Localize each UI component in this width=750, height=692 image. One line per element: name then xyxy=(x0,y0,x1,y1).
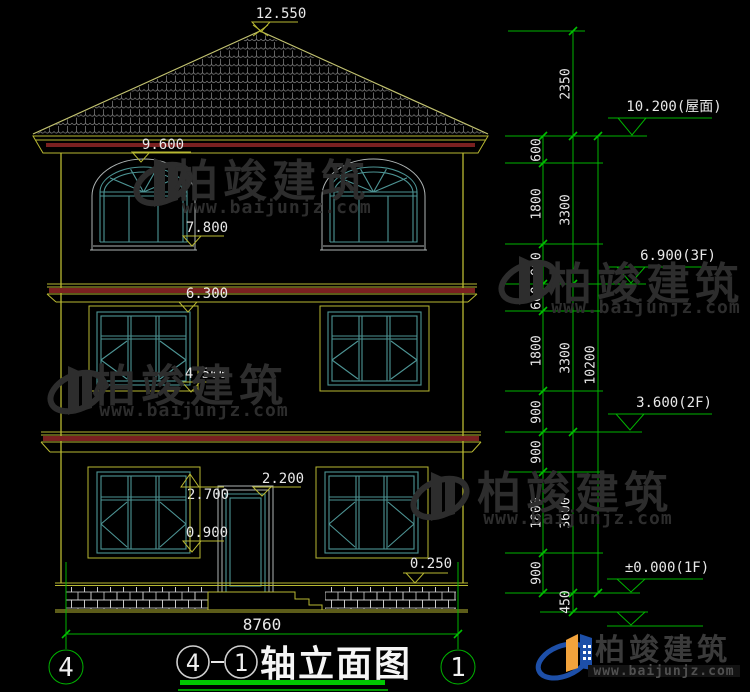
dim-2350: 2350 xyxy=(559,68,574,99)
plinth-base xyxy=(55,583,468,612)
title-axis-b: 1 xyxy=(234,649,248,677)
level-f1-head-label: 2.700 xyxy=(187,487,229,503)
dim-3300-b: 3300 xyxy=(559,342,574,373)
dim-1800-b: 1800 xyxy=(530,335,545,366)
watermark-1: 柏竣建筑 www.baijunjz.com xyxy=(131,156,372,218)
dim-900-d: 900 xyxy=(530,561,545,584)
dim-450: 450 xyxy=(559,590,574,613)
level-f1-sill-label: 0.900 xyxy=(186,525,228,541)
axis-bubble-right: 1 xyxy=(441,650,475,684)
cad-elevation-sheet: 12.550 9.600 7.800 6.300 4.500 2.700 2.2… xyxy=(0,0,750,692)
level-door-head: 2.200 xyxy=(253,471,304,496)
f2-floor-band xyxy=(41,432,481,452)
entry-steps xyxy=(208,592,322,610)
eave-cornice xyxy=(33,136,488,153)
hip-roof xyxy=(33,25,488,134)
level-plinth: 0.250 xyxy=(403,556,452,583)
watermark-url: www.baijunjz.com xyxy=(483,508,672,529)
level-f3-sill: 7.800 xyxy=(183,220,228,246)
level-f2-head-label: 6.300 xyxy=(186,286,228,302)
window-2f-right xyxy=(320,306,429,391)
title-underline-thick xyxy=(180,680,385,685)
title-text: 轴立面图 xyxy=(260,644,412,685)
roof-tile-field xyxy=(35,33,486,134)
drawing-title: 4 1 轴立面图 xyxy=(177,644,412,690)
dim-10200: 10200 xyxy=(584,345,599,384)
dim-1800-a: 1800 xyxy=(530,188,545,219)
logo-name: 柏竣建筑 xyxy=(595,633,731,668)
watermark-3: 柏竣建筑 www.baijunjz.com xyxy=(45,361,289,421)
level-door-head-label: 2.200 xyxy=(262,471,304,487)
level-plinth-label: 0.250 xyxy=(410,556,452,572)
level-ground-marker xyxy=(607,612,703,626)
brick-band-left xyxy=(66,587,208,609)
f3-floor-band xyxy=(47,284,477,302)
level-2f-label: 3.600(2F) xyxy=(636,395,712,411)
title-axis-a: 4 xyxy=(186,649,200,677)
level-f3-sill-label: 7.800 xyxy=(186,220,228,236)
level-ridge: 12.550 xyxy=(252,6,306,32)
level-ridge-label: 12.550 xyxy=(256,6,307,22)
window-1f-right xyxy=(316,467,428,558)
level-roof-label: 10.200(屋面) xyxy=(626,99,721,115)
watermark-url: www.baijunjz.com xyxy=(182,197,371,218)
level-1f-label: ±0.000(1F) xyxy=(625,560,709,576)
dim-600-a: 600 xyxy=(530,138,545,161)
overall-width-label: 8760 xyxy=(243,615,282,634)
company-logo: 柏竣建筑 www.baijunjz.com xyxy=(533,633,740,685)
brick-band-right xyxy=(325,587,456,609)
axis-left-number: 4 xyxy=(58,653,74,683)
dim-3300-a: 3300 xyxy=(559,194,574,225)
logo-building-orange xyxy=(566,634,578,672)
logo-url: www.baijunjz.com xyxy=(593,664,734,679)
watermark-url: www.baijunjz.com xyxy=(551,297,740,318)
story-level-markers: 10.200(屋面) 6.900(3F) 3.600(2F) ±0.000(1F… xyxy=(607,99,722,626)
axis-bubble-left: 4 xyxy=(49,650,83,684)
window-1f-left xyxy=(88,467,200,558)
level-1f-marker: ±0.000(1F) xyxy=(607,560,709,592)
level-eave-label: 9.600 xyxy=(142,137,184,153)
level-2f-marker: 3.600(2F) xyxy=(608,395,712,430)
dim-900-b: 900 xyxy=(530,400,545,423)
level-f2-head: 6.300 xyxy=(179,286,228,312)
axis-right-number: 1 xyxy=(450,653,466,683)
level-roof-marker: 10.200(屋面) xyxy=(608,99,722,135)
dim-900-c: 900 xyxy=(530,440,545,463)
watermark-4: 柏竣建筑 www.baijunjz.com xyxy=(408,468,673,529)
elevation-drawing: 12.550 9.600 7.800 6.300 4.500 2.700 2.2… xyxy=(0,0,750,692)
watermark-url: www.baijunjz.com xyxy=(99,400,288,421)
